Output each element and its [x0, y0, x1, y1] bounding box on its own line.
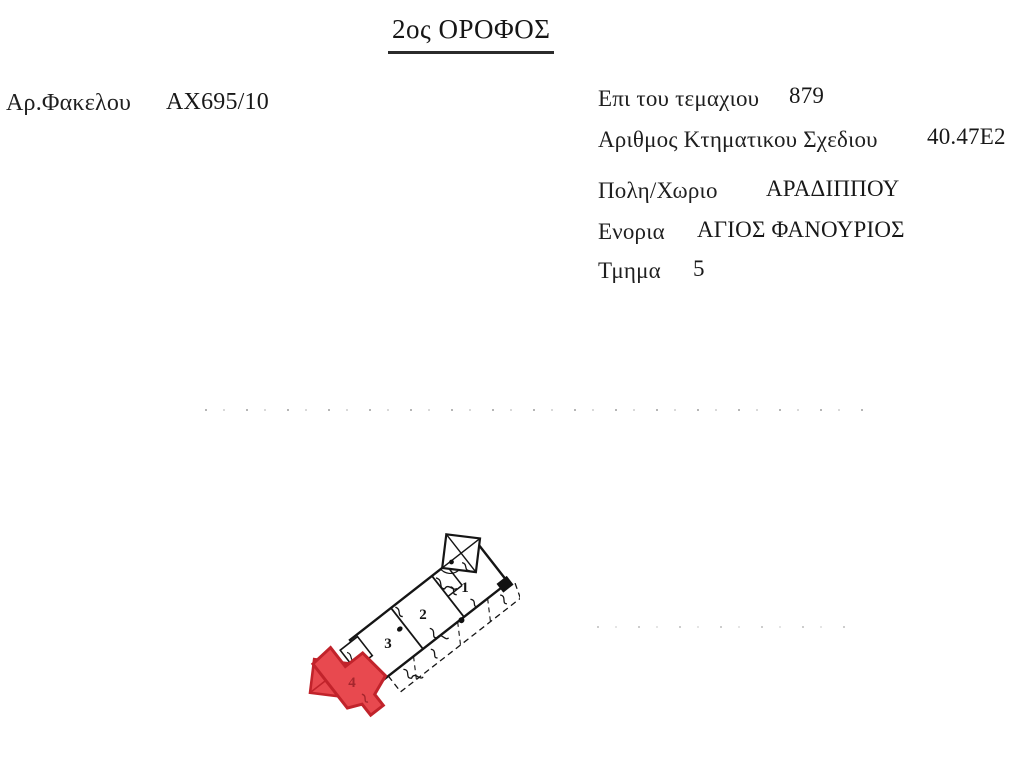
parish-label: Ενορια — [598, 219, 665, 245]
floor-plan-drawing: 1 2 3 4 — [290, 518, 520, 748]
unit-label-4-highlighted: 4 — [348, 675, 356, 691]
scan-artifact-dotted-line-right — [597, 626, 847, 628]
file-number-label: Αρ.Φακελου — [6, 90, 131, 117]
cadastral-plan-value: 40.47E2 — [927, 124, 1006, 150]
unit-label-3: 3 — [384, 636, 392, 652]
plot-value: 879 — [789, 83, 824, 109]
town-value: ΑΡΑΔΙΠΠΟΥ — [766, 176, 899, 202]
scanned-document-page: { "document": { "title": "2ος ΟΡΟΦΟΣ", "… — [0, 0, 1024, 768]
plot-label: Επι του τεμαχιου — [598, 86, 759, 112]
page-title-wrap: 2ος ΟΡΟΦΟΣ — [388, 14, 554, 45]
file-number-value: AX695/10 — [166, 89, 269, 116]
section-value: 5 — [693, 256, 705, 282]
unit-label-1: 1 — [461, 580, 469, 596]
unit-label-2: 2 — [419, 607, 427, 623]
section-label: Τμημα — [598, 258, 661, 284]
floor-title: 2ος ΟΡΟΦΟΣ — [388, 14, 554, 54]
town-label: Πολη/Χωριο — [598, 178, 718, 204]
unit-strip-outline — [350, 541, 508, 680]
cadastral-plan-label: Αριθμος Κτηματικου Σχεδιου — [598, 127, 878, 153]
parish-value: ΑΓΙΟΣ ΦΑΝΟΥΡΙΟΣ — [697, 217, 905, 243]
scan-artifact-dotted-line-upper — [205, 409, 870, 411]
